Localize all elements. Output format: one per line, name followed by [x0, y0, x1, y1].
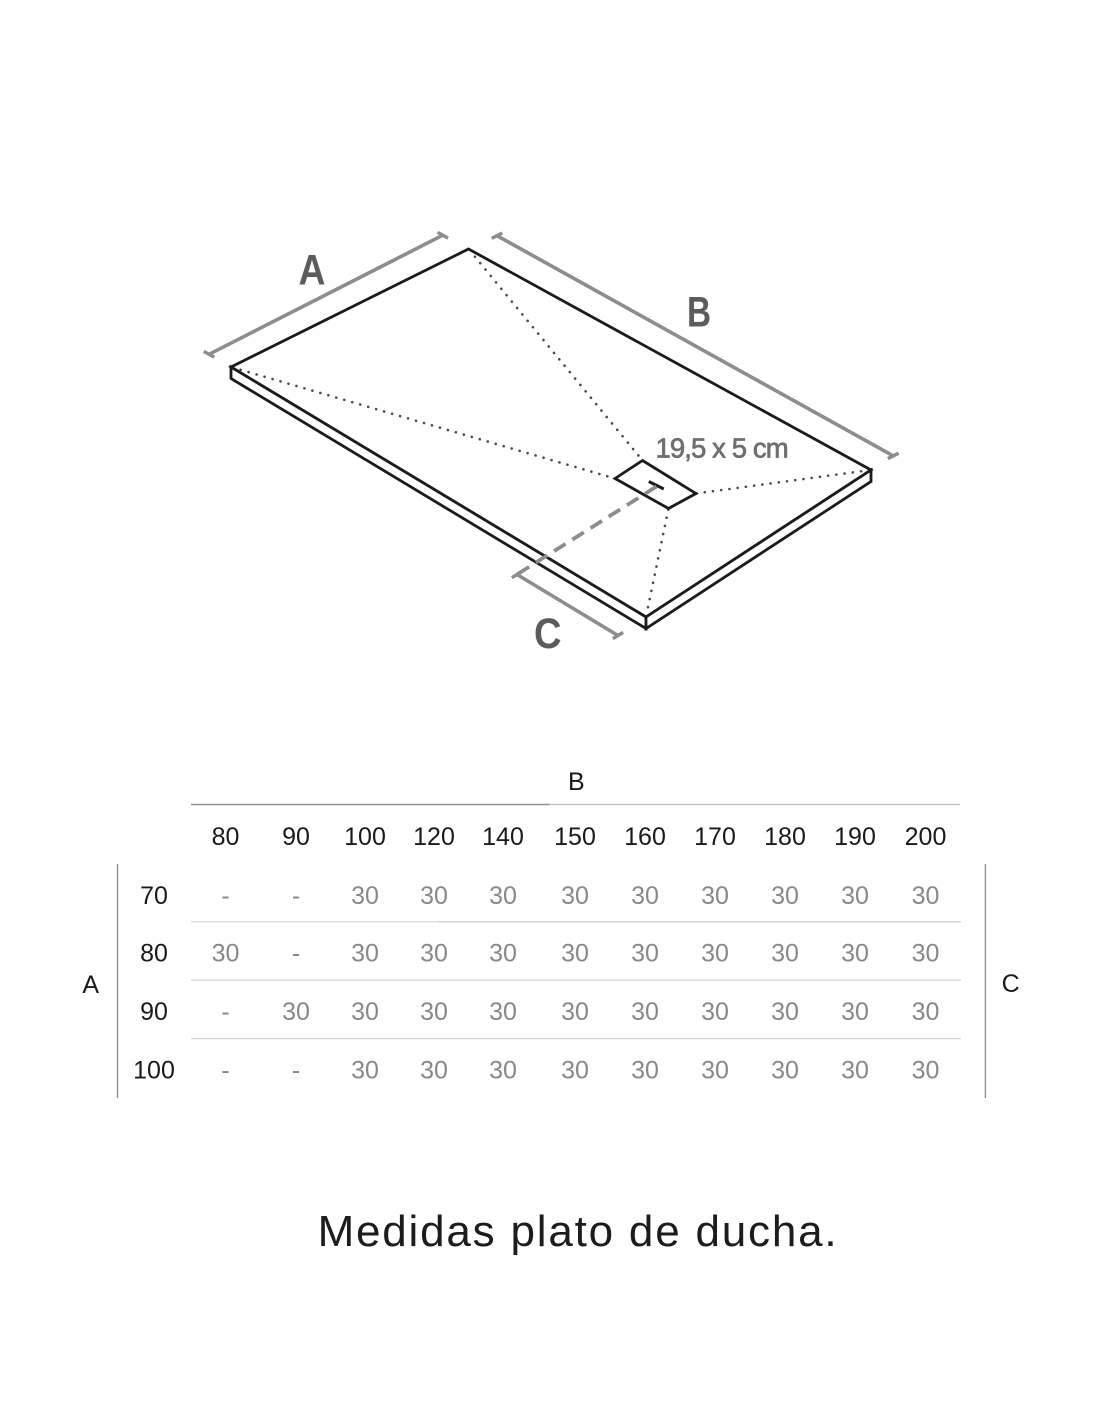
svg-text:200: 200 — [905, 823, 947, 851]
svg-text:30: 30 — [561, 1057, 589, 1085]
svg-text:A: A — [82, 971, 99, 999]
svg-text:30: 30 — [420, 940, 448, 968]
svg-text:80: 80 — [212, 823, 240, 851]
svg-text:30: 30 — [912, 940, 940, 968]
svg-text:B: B — [687, 290, 711, 337]
svg-text:30: 30 — [561, 998, 589, 1026]
svg-text:100: 100 — [344, 823, 386, 851]
svg-text:30: 30 — [631, 1057, 659, 1085]
svg-text:180: 180 — [764, 823, 806, 851]
svg-text:30: 30 — [771, 1057, 799, 1085]
svg-text:30: 30 — [701, 940, 729, 968]
svg-text:30: 30 — [561, 940, 589, 968]
svg-text:30: 30 — [771, 940, 799, 968]
svg-text:30: 30 — [631, 998, 659, 1026]
svg-text:30: 30 — [561, 882, 589, 910]
svg-text:30: 30 — [489, 998, 517, 1026]
svg-text:30: 30 — [701, 1057, 729, 1085]
svg-text:B: B — [568, 768, 585, 796]
svg-text:-: - — [221, 998, 229, 1026]
svg-text:30: 30 — [351, 998, 379, 1026]
svg-text:30: 30 — [701, 998, 729, 1026]
svg-text:30: 30 — [420, 1057, 448, 1085]
svg-text:30: 30 — [631, 882, 659, 910]
svg-text:100: 100 — [133, 1057, 175, 1085]
svg-text:170: 170 — [694, 823, 736, 851]
svg-text:30: 30 — [420, 998, 448, 1026]
svg-text:80: 80 — [140, 940, 168, 968]
svg-text:-: - — [292, 940, 300, 968]
svg-text:30: 30 — [489, 882, 517, 910]
svg-text:120: 120 — [413, 823, 455, 851]
svg-text:A: A — [299, 248, 326, 295]
svg-text:30: 30 — [771, 998, 799, 1026]
svg-text:190: 190 — [834, 823, 876, 851]
svg-text:140: 140 — [482, 823, 524, 851]
svg-text:30: 30 — [771, 882, 799, 910]
svg-text:19,5 x 5 cm: 19,5 x 5 cm — [656, 433, 788, 464]
svg-text:160: 160 — [624, 823, 666, 851]
svg-text:30: 30 — [912, 998, 940, 1026]
svg-text:150: 150 — [554, 823, 596, 851]
svg-text:30: 30 — [701, 882, 729, 910]
svg-text:30: 30 — [841, 882, 869, 910]
svg-text:30: 30 — [489, 940, 517, 968]
svg-text:90: 90 — [282, 823, 310, 851]
svg-text:30: 30 — [351, 940, 379, 968]
svg-text:Medidas plato de ducha.: Medidas plato de ducha. — [318, 1207, 839, 1256]
svg-text:30: 30 — [282, 998, 310, 1026]
svg-text:30: 30 — [489, 1057, 517, 1085]
svg-text:30: 30 — [351, 882, 379, 910]
svg-text:30: 30 — [631, 940, 659, 968]
svg-text:30: 30 — [841, 940, 869, 968]
svg-text:C: C — [1002, 970, 1020, 998]
svg-text:-: - — [292, 1057, 300, 1085]
svg-text:30: 30 — [912, 1057, 940, 1085]
svg-text:C: C — [534, 611, 562, 658]
svg-text:30: 30 — [420, 882, 448, 910]
svg-text:30: 30 — [841, 998, 869, 1026]
svg-text:90: 90 — [140, 998, 168, 1026]
svg-text:30: 30 — [912, 882, 940, 910]
svg-text:30: 30 — [841, 1057, 869, 1085]
svg-text:-: - — [292, 882, 300, 910]
svg-text:-: - — [221, 1057, 229, 1085]
svg-text:70: 70 — [140, 882, 168, 910]
svg-text:30: 30 — [351, 1057, 379, 1085]
svg-text:-: - — [221, 882, 229, 910]
svg-text:30: 30 — [212, 940, 240, 968]
